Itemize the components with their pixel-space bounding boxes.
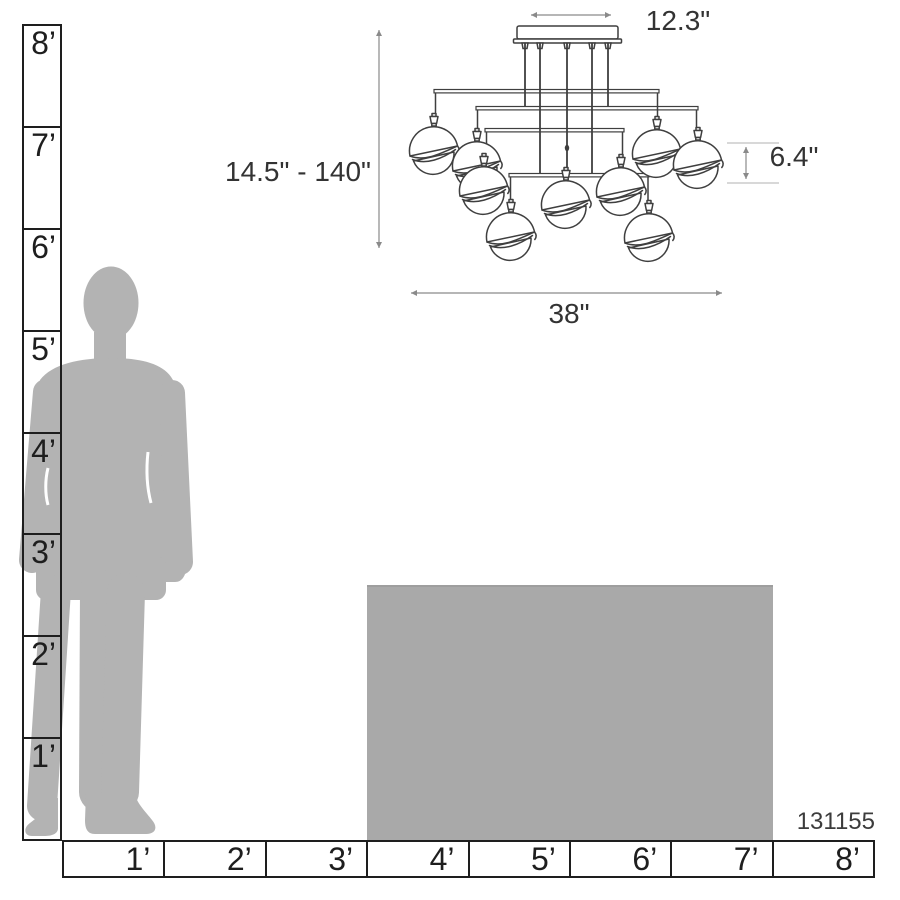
ruler-cell-label: 6’ <box>31 229 56 265</box>
ruler-cell-label: 8’ <box>835 841 860 878</box>
ruler-cell-label: 1’ <box>125 841 150 878</box>
vertical-ruler: 8’ 7’ 6’ 5’ 4’ 3’ 2’ 1’ <box>22 24 62 841</box>
ruler-cell: 2’ <box>165 842 266 876</box>
ruler-cell: 5’ <box>470 842 571 876</box>
ruler-cell: 8’ <box>774 842 873 876</box>
scale-diagram: 8’ 7’ 6’ 5’ 4’ 3’ 2’ 1’ 1’ 2’ 3’ 4’ 5’ 6… <box>0 0 900 900</box>
height-range-label: 14.5" - 140" <box>225 156 371 188</box>
ruler-cell: 1’ <box>64 842 165 876</box>
ruler-cell: 7’ <box>24 128 60 230</box>
shade-height-label: 6.4" <box>770 141 819 173</box>
ruler-cell: 2’ <box>24 637 60 739</box>
ruler-cell-label: 2’ <box>31 636 56 672</box>
ruler-cell: 3’ <box>24 535 60 637</box>
overall-width-label: 38" <box>548 298 589 330</box>
ruler-cell: 4’ <box>24 434 60 536</box>
ruler-cell-label: 2’ <box>227 841 252 878</box>
silhouette-right-shoe <box>85 793 155 834</box>
ruler-cell-label: 5’ <box>531 841 556 878</box>
silhouette-head <box>84 267 139 340</box>
ruler-cell-label: 7’ <box>734 841 759 878</box>
ruler-cell: 6’ <box>24 230 60 332</box>
ruler-cell: 6’ <box>571 842 672 876</box>
ruler-cell-label: 4’ <box>430 841 455 878</box>
ruler-cell: 7’ <box>672 842 773 876</box>
ruler-cell: 4’ <box>368 842 469 876</box>
ruler-cell: 1’ <box>24 739 60 839</box>
ruler-cell-label: 3’ <box>31 534 56 570</box>
chandelier-drawing <box>409 26 723 261</box>
canopy-width-label: 12.3" <box>646 5 710 37</box>
diagram-artwork <box>0 0 900 900</box>
ruler-cell-label: 6’ <box>632 841 657 878</box>
ruler-cell-label: 3’ <box>328 841 353 878</box>
item-number: 131155 <box>797 808 875 836</box>
ruler-cell: 3’ <box>267 842 368 876</box>
ruler-cell-label: 7’ <box>31 127 56 163</box>
ruler-cell-label: 1’ <box>31 738 56 774</box>
ruler-cell-label: 4’ <box>31 433 56 469</box>
ruler-cell: 5’ <box>24 332 60 434</box>
horizontal-ruler: 1’ 2’ 3’ 4’ 5’ 6’ 7’ 8’ <box>62 840 875 878</box>
ruler-cell-label: 8’ <box>31 25 56 61</box>
ruler-cell-label: 5’ <box>31 331 56 367</box>
ruler-cell: 8’ <box>24 26 60 128</box>
